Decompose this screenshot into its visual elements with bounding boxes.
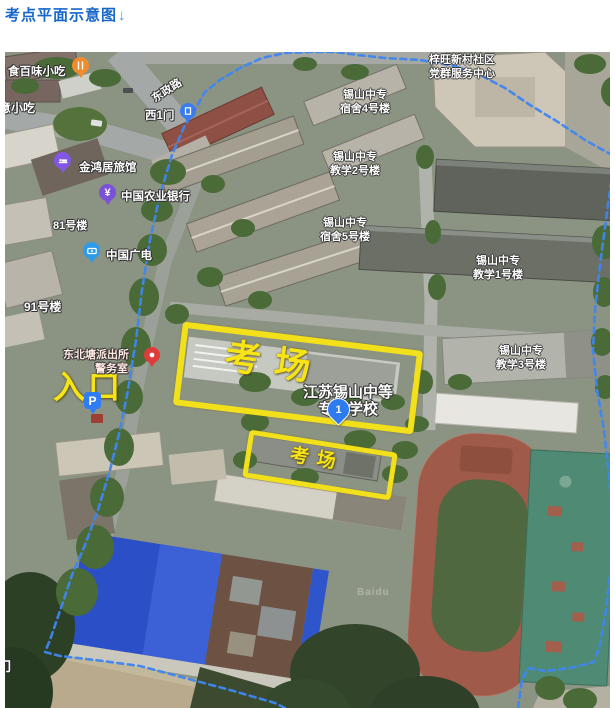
poi-label-hotel: 金鸿居旅馆 [79, 159, 137, 175]
parking-icon: P [84, 392, 101, 409]
label-line1: 锡山中专 [460, 255, 536, 269]
gate-icon [180, 103, 196, 119]
building-81-label: 81号楼 [53, 217, 87, 233]
label-line1: 锡山中专 [317, 151, 393, 165]
building-91-label: 91号楼 [24, 298, 61, 315]
police-station-pin-icon [144, 347, 160, 363]
label-line2: 宿舍5号楼 [307, 231, 383, 245]
label-line2: 党群服务中心 [424, 68, 500, 82]
poi-label-west-gate: 西1门 [145, 107, 174, 123]
yuan-symbol: ¥ [99, 184, 116, 201]
dot-glyph [144, 347, 160, 363]
poi-label-snack-shop-partial: 意小吃 [5, 99, 35, 116]
bed-glyph [54, 152, 71, 169]
label-line2: 宿舍4号楼 [327, 103, 403, 117]
poi-label-snack-shop: 食百味小吃 [8, 63, 66, 79]
marker-number: 1 [328, 399, 349, 420]
map-watermark: Baidu [357, 587, 390, 598]
label-line2: 教学1号楼 [460, 269, 536, 283]
poi-label-broadcast: 中国广电 [106, 247, 152, 263]
label-line2: 教学3号楼 [483, 359, 559, 373]
teaching-3-label: 锡山中专 教学3号楼 [483, 345, 559, 372]
poi-label-bank: 中国农业银行 [121, 188, 190, 204]
page-title: 考点平面示意图↓ [5, 4, 127, 25]
down-arrow-icon: ↓ [118, 7, 127, 24]
teaching-1-label: 锡山中专 教学1号楼 [460, 255, 536, 282]
police-station-label-line2: 警务室 [95, 360, 128, 376]
door-glyph [180, 103, 196, 119]
restaurant-icon [72, 57, 89, 74]
label-line1: 锡山中专 [483, 345, 559, 359]
hotel-icon [54, 152, 71, 169]
campus-satellite-map[interactable]: 考场 考场 入口 江苏锡山中等 专业学校 1 食百味小吃 意小吃 东政路 西1门… [5, 52, 610, 708]
dorm-4-label: 锡山中专 宿舍4号楼 [327, 89, 403, 116]
teaching-2-label: 锡山中专 教学2号楼 [317, 151, 393, 178]
label-line1: 锡山中专 [327, 89, 403, 103]
gate-partial-label: 门 [5, 656, 11, 675]
label-line2: 教学2号楼 [317, 165, 393, 179]
parking-symbol: P [84, 392, 101, 409]
page-title-text: 考点平面示意图 [5, 7, 117, 24]
label-line1: 梓旺新村社区 [424, 54, 500, 68]
article-page: 考点平面示意图↓ [0, 0, 615, 708]
bank-icon: ¥ [99, 184, 116, 201]
tv-glyph [83, 242, 100, 259]
community-center-label: 梓旺新村社区 党群服务中心 [424, 54, 500, 81]
label-line1: 锡山中专 [307, 217, 383, 231]
dorm-5-label: 锡山中专 宿舍5号楼 [307, 217, 383, 244]
broadcast-icon [83, 242, 100, 259]
fork-knife-glyph [72, 57, 89, 74]
